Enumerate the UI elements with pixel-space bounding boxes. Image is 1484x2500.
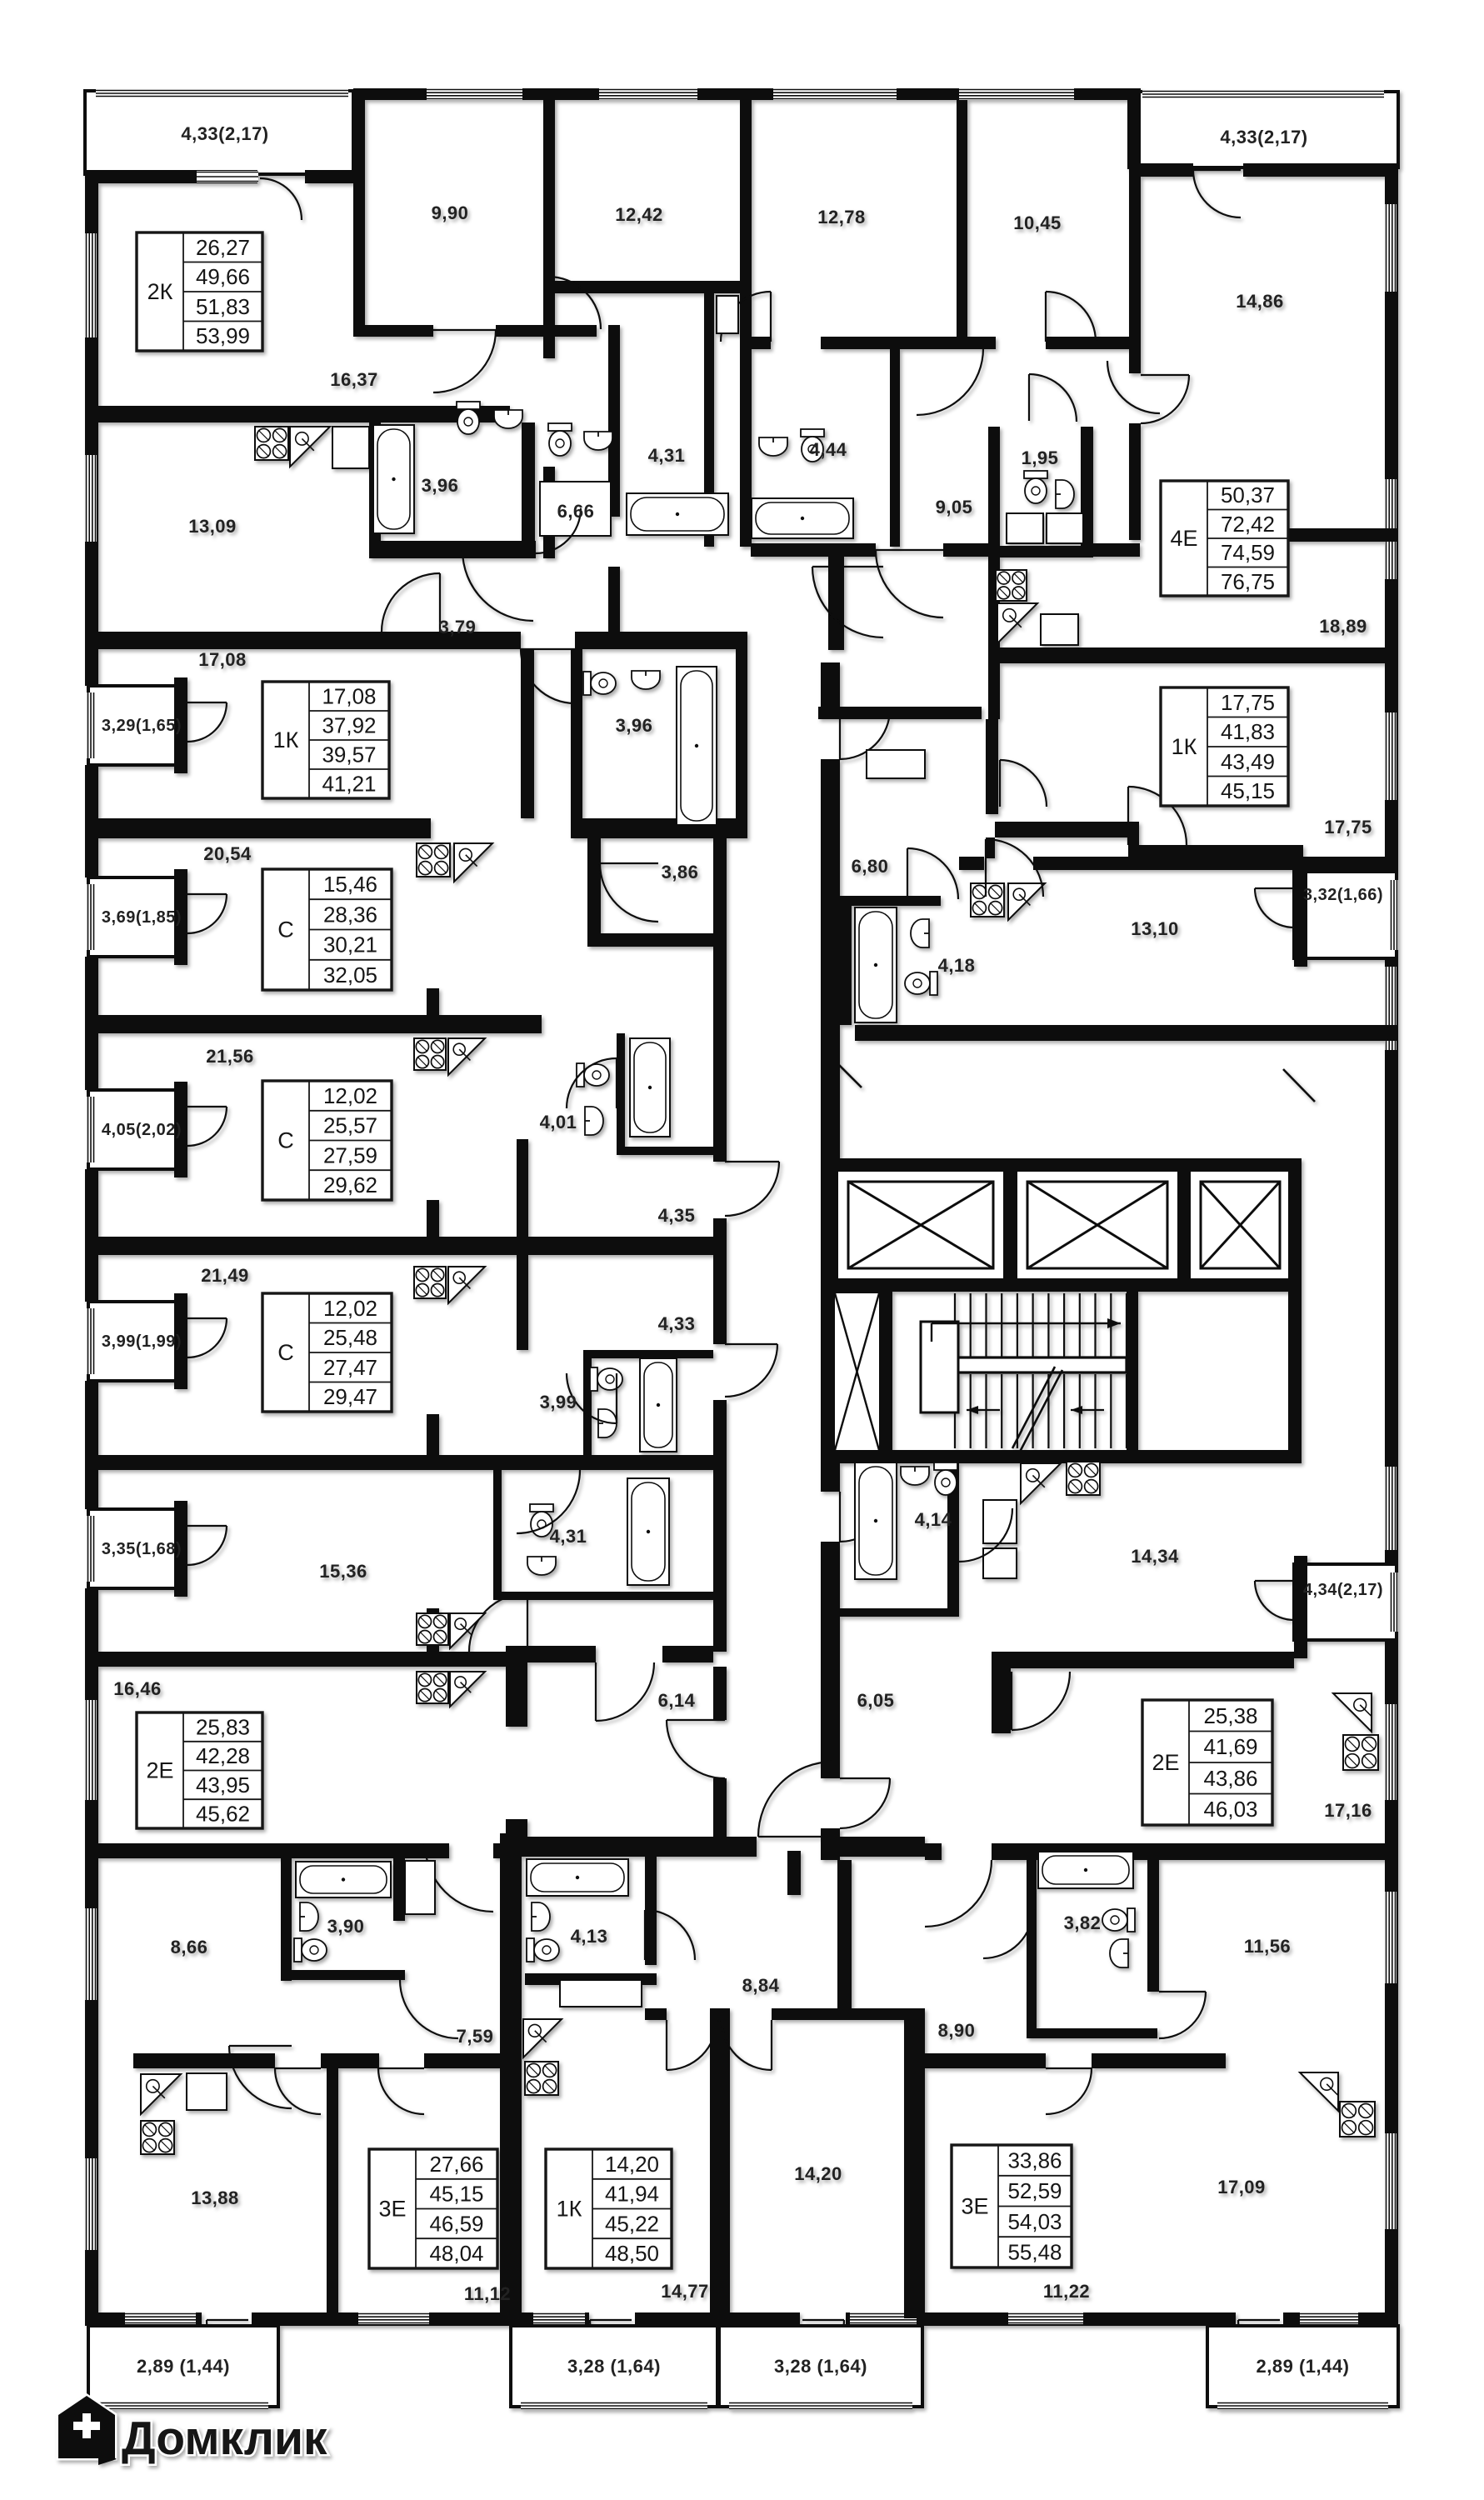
svg-text:48,04: 48,04: [429, 2241, 483, 2266]
svg-text:51,83: 51,83: [196, 294, 250, 319]
svg-text:53,99: 53,99: [196, 323, 250, 348]
svg-text:3Е: 3Е: [961, 2194, 988, 2219]
svg-text:3,69(1,85): 3,69(1,85): [102, 908, 182, 927]
svg-text:52,59: 52,59: [1007, 2178, 1062, 2203]
svg-text:45,15: 45,15: [1221, 778, 1275, 803]
svg-text:30,21: 30,21: [323, 932, 377, 957]
svg-text:50,37: 50,37: [1221, 482, 1275, 507]
svg-text:6,14: 6,14: [658, 1690, 696, 1711]
svg-text:9,05: 9,05: [936, 497, 973, 517]
svg-text:15,46: 15,46: [323, 872, 377, 897]
svg-text:10,45: 10,45: [1013, 212, 1062, 233]
svg-text:14,20: 14,20: [794, 2163, 842, 2184]
svg-text:4,18: 4,18: [938, 955, 976, 976]
svg-text:29,47: 29,47: [323, 1384, 377, 1409]
svg-text:26,27: 26,27: [196, 235, 250, 260]
svg-text:11,12: 11,12: [464, 2283, 511, 2304]
svg-text:72,42: 72,42: [1221, 512, 1275, 537]
svg-text:7,59: 7,59: [457, 2026, 494, 2047]
svg-text:20,54: 20,54: [203, 843, 252, 864]
svg-text:4,05(2,02): 4,05(2,02): [102, 1121, 182, 1139]
svg-text:45,15: 45,15: [429, 2182, 483, 2207]
svg-text:21,56: 21,56: [206, 1046, 254, 1067]
svg-text:Домклик: Домклик: [122, 2412, 327, 2465]
svg-text:49,66: 49,66: [196, 264, 250, 289]
svg-text:4,13: 4,13: [571, 1926, 608, 1947]
svg-text:17,09: 17,09: [1217, 2177, 1266, 2197]
svg-text:46,03: 46,03: [1203, 1797, 1257, 1822]
svg-text:4Е: 4Е: [1170, 526, 1197, 551]
svg-text:41,83: 41,83: [1221, 719, 1275, 744]
svg-text:4,33: 4,33: [658, 1313, 696, 1334]
svg-text:45,22: 45,22: [605, 2211, 659, 2236]
svg-text:3,28 (1,64): 3,28 (1,64): [774, 2356, 867, 2377]
svg-text:С: С: [277, 1128, 294, 1153]
svg-text:11,22: 11,22: [1043, 2281, 1090, 2302]
svg-text:11,56: 11,56: [1244, 1936, 1291, 1957]
svg-text:8,66: 8,66: [171, 1937, 208, 1957]
svg-text:3,96: 3,96: [616, 715, 653, 736]
svg-text:33,86: 33,86: [1007, 2147, 1062, 2172]
svg-text:48,50: 48,50: [605, 2241, 659, 2266]
svg-text:54,03: 54,03: [1007, 2209, 1062, 2234]
svg-text:4,31: 4,31: [550, 1526, 587, 1547]
svg-text:4,34(2,17): 4,34(2,17): [1303, 1581, 1383, 1599]
svg-text:13,10: 13,10: [1131, 918, 1179, 939]
svg-text:12,78: 12,78: [817, 207, 866, 227]
svg-text:3,99: 3,99: [540, 1392, 577, 1412]
svg-text:2Е: 2Е: [146, 1758, 173, 1783]
svg-text:9,90: 9,90: [432, 202, 469, 223]
svg-text:4,14: 4,14: [915, 1509, 952, 1530]
svg-text:13,88: 13,88: [191, 2187, 239, 2208]
svg-text:2Е: 2Е: [1152, 1750, 1179, 1775]
svg-text:43,49: 43,49: [1221, 749, 1275, 774]
svg-text:С: С: [277, 1340, 294, 1365]
svg-text:1К: 1К: [273, 727, 299, 752]
svg-text:25,48: 25,48: [323, 1325, 377, 1350]
svg-text:14,86: 14,86: [1236, 291, 1284, 312]
svg-text:28,36: 28,36: [323, 902, 377, 927]
svg-text:13,09: 13,09: [188, 516, 237, 537]
svg-text:16,46: 16,46: [113, 1678, 162, 1699]
svg-text:43,95: 43,95: [196, 1772, 250, 1797]
svg-text:3Е: 3Е: [378, 2197, 406, 2222]
svg-text:39,57: 39,57: [322, 742, 376, 767]
svg-text:46,59: 46,59: [429, 2211, 483, 2236]
svg-text:8,90: 8,90: [938, 2020, 976, 2041]
svg-text:4,33(2,17): 4,33(2,17): [181, 123, 268, 144]
svg-text:25,57: 25,57: [323, 1113, 377, 1138]
svg-text:41,94: 41,94: [605, 2182, 659, 2207]
svg-text:4,01: 4,01: [540, 1112, 577, 1132]
svg-text:41,69: 41,69: [1203, 1734, 1257, 1759]
svg-text:25,83: 25,83: [196, 1714, 250, 1739]
svg-text:8,84: 8,84: [742, 1975, 780, 1996]
svg-text:4,33(2,17): 4,33(2,17): [1220, 127, 1307, 147]
svg-text:12,02: 12,02: [323, 1296, 377, 1321]
svg-text:1К: 1К: [1172, 734, 1197, 759]
svg-text:3,99(1,99): 3,99(1,99): [102, 1332, 182, 1351]
svg-text:2К: 2К: [147, 279, 173, 304]
svg-text:41,21: 41,21: [322, 772, 376, 797]
svg-text:27,47: 27,47: [323, 1355, 377, 1380]
svg-text:14,20: 14,20: [605, 2152, 659, 2177]
svg-text:1К: 1К: [557, 2197, 582, 2222]
svg-text:14,34: 14,34: [1131, 1546, 1179, 1567]
svg-text:29,62: 29,62: [323, 1172, 377, 1197]
svg-text:3,32(1,66): 3,32(1,66): [1303, 886, 1383, 904]
svg-text:1,95: 1,95: [1022, 447, 1059, 468]
svg-text:12,42: 12,42: [615, 204, 663, 225]
svg-text:14,77: 14,77: [661, 2281, 709, 2302]
svg-text:6,80: 6,80: [852, 856, 889, 877]
svg-text:15,36: 15,36: [319, 1561, 367, 1582]
svg-text:3,28 (1,64): 3,28 (1,64): [567, 2356, 661, 2377]
svg-text:17,08: 17,08: [198, 649, 247, 670]
svg-text:2,89 (1,44): 2,89 (1,44): [137, 2356, 230, 2377]
svg-text:3,29(1,65): 3,29(1,65): [102, 717, 182, 735]
svg-text:12,02: 12,02: [323, 1083, 377, 1108]
svg-text:6,05: 6,05: [857, 1690, 895, 1711]
svg-text:17,75: 17,75: [1221, 690, 1275, 715]
svg-text:76,75: 76,75: [1221, 569, 1275, 594]
svg-text:55,48: 55,48: [1007, 2240, 1062, 2265]
svg-text:42,28: 42,28: [196, 1743, 250, 1768]
svg-text:4,44: 4,44: [810, 439, 847, 460]
svg-text:32,05: 32,05: [323, 962, 377, 987]
svg-text:17,75: 17,75: [1324, 817, 1372, 837]
svg-text:6,66: 6,66: [557, 501, 595, 522]
svg-text:45,62: 45,62: [196, 1802, 250, 1827]
svg-text:С: С: [277, 917, 294, 942]
svg-text:3,82: 3,82: [1064, 1912, 1102, 1933]
svg-text:43,86: 43,86: [1203, 1766, 1257, 1791]
svg-text:3,35(1,68): 3,35(1,68): [102, 1540, 182, 1558]
svg-text:27,59: 27,59: [323, 1142, 377, 1167]
svg-text:3,86: 3,86: [662, 862, 699, 882]
svg-text:3,96: 3,96: [422, 475, 459, 496]
svg-text:17,16: 17,16: [1324, 1800, 1372, 1821]
svg-text:25,38: 25,38: [1203, 1703, 1257, 1728]
svg-text:3,90: 3,90: [327, 1916, 365, 1937]
svg-text:17,08: 17,08: [322, 684, 376, 709]
svg-text:37,92: 37,92: [322, 713, 376, 738]
svg-text:21,49: 21,49: [201, 1265, 249, 1286]
svg-text:4,31: 4,31: [648, 445, 686, 466]
svg-text:74,59: 74,59: [1221, 540, 1275, 565]
svg-text:18,89: 18,89: [1319, 616, 1367, 637]
svg-text:2,89 (1,44): 2,89 (1,44): [1257, 2356, 1350, 2377]
svg-text:27,66: 27,66: [429, 2152, 483, 2177]
svg-text:4,35: 4,35: [658, 1205, 696, 1226]
svg-text:3,79: 3,79: [439, 617, 477, 637]
svg-text:16,37: 16,37: [330, 369, 378, 390]
